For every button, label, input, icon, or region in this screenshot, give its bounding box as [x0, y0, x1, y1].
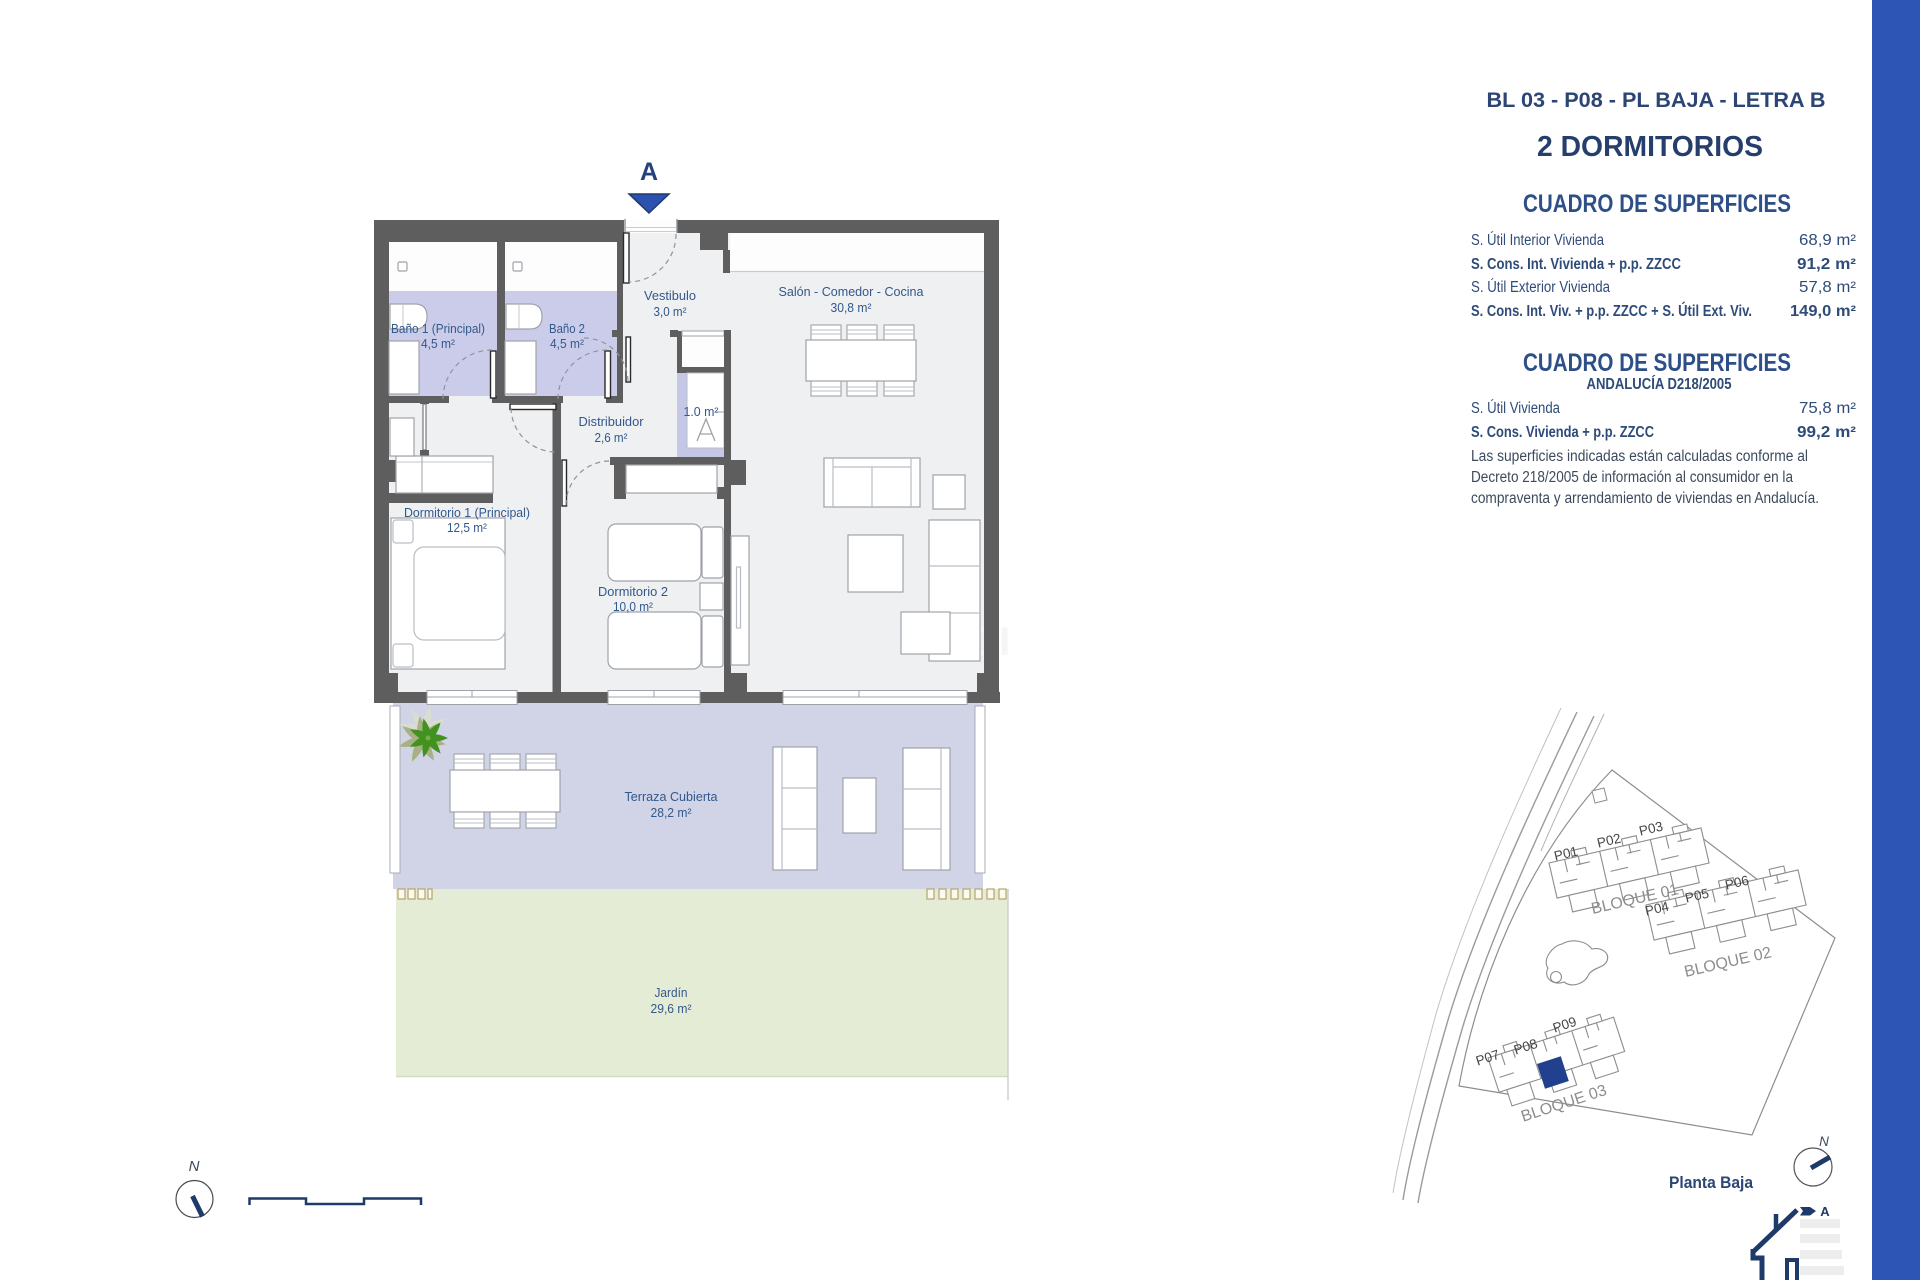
- svg-text:A: A: [1820, 1204, 1830, 1219]
- svg-text:BL 03 - P08 - PL BAJA - LETRA: BL 03 - P08 - PL BAJA - LETRA B: [1487, 89, 1826, 112]
- svg-text:28,2 m²: 28,2 m²: [651, 806, 692, 820]
- svg-text:S. Útil Exterior Vivienda: S. Útil Exterior Vivienda: [1471, 279, 1610, 296]
- svg-text:Dormitorio 2: Dormitorio 2: [598, 585, 668, 599]
- svg-text:57,8 m²: 57,8 m²: [1799, 279, 1856, 296]
- svg-text:Salón - Comedor - Cocina: Salón - Comedor - Cocina: [779, 285, 924, 299]
- svg-text:A: A: [640, 158, 658, 186]
- svg-text:N: N: [1819, 1134, 1829, 1149]
- svg-text:Jardín: Jardín: [655, 986, 688, 1000]
- svg-text:29,6 m²: 29,6 m²: [651, 1002, 692, 1016]
- svg-text:ANDALUCÍA D218/2005: ANDALUCÍA D218/2005: [1587, 376, 1732, 393]
- svg-text:S. Cons. Int. Vivienda + p.p.: S. Cons. Int. Vivienda + p.p. ZZCC: [1471, 256, 1681, 273]
- svg-text:N: N: [189, 1158, 200, 1175]
- svg-text:S. Útil Interior Vivienda: S. Útil Interior Vivienda: [1471, 232, 1604, 249]
- svg-text:2 DORMITORIOS: 2 DORMITORIOS: [1537, 131, 1763, 163]
- svg-text:10,0 m²: 10,0 m²: [613, 600, 653, 614]
- svg-text:30,8 m²: 30,8 m²: [831, 301, 872, 315]
- svg-text:12,5 m²: 12,5 m²: [447, 521, 487, 535]
- svg-text:Distribuidor: Distribuidor: [579, 415, 644, 429]
- svg-text:Vestibulo: Vestibulo: [644, 289, 696, 303]
- svg-text:S. Útil Vivienda: S. Útil Vivienda: [1471, 400, 1560, 417]
- svg-text:4,5 m²: 4,5 m²: [550, 337, 584, 351]
- svg-text:CUADRO DE SUPERFICIES: CUADRO DE SUPERFICIES: [1523, 190, 1791, 218]
- svg-text:Terraza Cubierta: Terraza Cubierta: [625, 790, 718, 804]
- svg-text:91,2 m²: 91,2 m²: [1797, 256, 1856, 273]
- svg-text:Baño 1 (Principal): Baño 1 (Principal): [391, 322, 485, 336]
- svg-text:Planta Baja: Planta Baja: [1669, 1173, 1753, 1192]
- svg-text:149,0 m²: 149,0 m²: [1790, 303, 1856, 320]
- svg-text:75,8 m²: 75,8 m²: [1799, 400, 1856, 417]
- svg-text:1.0 m²: 1.0 m²: [684, 405, 719, 419]
- svg-text:2,6 m²: 2,6 m²: [595, 431, 628, 445]
- svg-text:4,5 m²: 4,5 m²: [421, 337, 455, 351]
- svg-text:CUADRO DE SUPERFICIES: CUADRO DE SUPERFICIES: [1523, 349, 1791, 377]
- svg-text:3,0 m²: 3,0 m²: [654, 305, 687, 319]
- svg-text:99,2 m²: 99,2 m²: [1797, 424, 1856, 441]
- svg-text:Dormitorio 1 (Principal): Dormitorio 1 (Principal): [404, 506, 530, 520]
- svg-text:S. Cons. Vivienda + p.p. ZZCC: S. Cons. Vivienda + p.p. ZZCC: [1471, 424, 1654, 441]
- svg-text:compraventa y arrendamiento de: compraventa y arrendamiento de viviendas…: [1471, 490, 1819, 507]
- svg-text:S. Cons. Int. Viv. + p.p. ZZCC: S. Cons. Int. Viv. + p.p. ZZCC + S. Útil…: [1471, 302, 1752, 320]
- svg-text:Decreto 218/2005 de informació: Decreto 218/2005 de información al consu…: [1471, 469, 1793, 486]
- svg-text:Baño 2: Baño 2: [549, 322, 585, 336]
- svg-text:68,9 m²: 68,9 m²: [1799, 232, 1856, 249]
- svg-text:Las superficies indicadas está: Las superficies indicadas están calculad…: [1471, 448, 1808, 465]
